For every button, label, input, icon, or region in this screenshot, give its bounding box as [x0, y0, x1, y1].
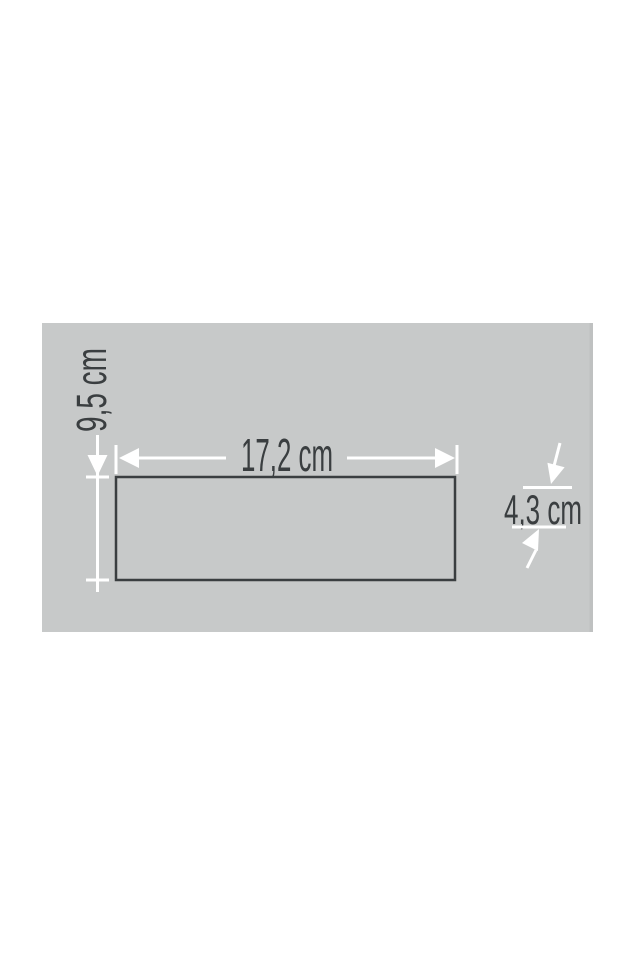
dimension-diagram: 9,5 cm 17,2 cm 4,3 cm	[0, 0, 640, 960]
height-dimension-label: 9,5 cm	[68, 348, 116, 432]
product-dimension-image: 9,5 cm 17,2 cm 4,3 cm	[0, 0, 640, 960]
width-dimension-label: 17,2 cm	[241, 429, 333, 481]
panel-edge-shade	[590, 323, 594, 632]
